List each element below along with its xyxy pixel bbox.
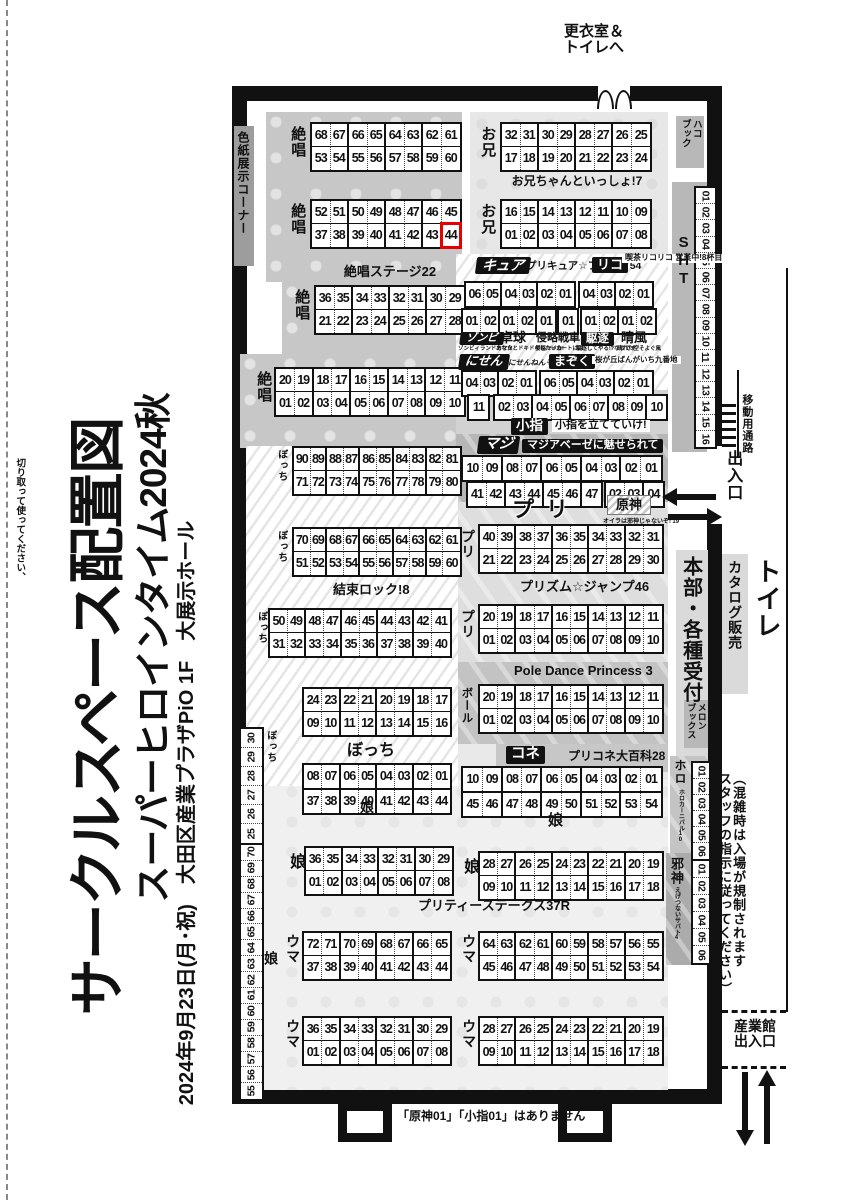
bocchi-label-c: ぼっち: [255, 611, 266, 644]
seat-musume-r-28: 28: [480, 853, 498, 876]
seat-kone-row1-01: 01: [641, 768, 661, 791]
seat-bocchi-d-15: 15: [414, 712, 432, 735]
seat-musume-row37-39: 39: [341, 790, 359, 813]
seat-puri-b-07: 07: [589, 629, 607, 652]
seat-puri-a-32: 32: [626, 526, 644, 549]
seat-puri-a-30: 30: [644, 549, 662, 572]
seat-sht-strip-02: 02: [696, 204, 715, 220]
seat-musume-r-12: 12: [535, 876, 553, 899]
seat-sensha-row-01: 01: [559, 310, 577, 333]
koyubi-label: 小指: [511, 418, 548, 435]
seat-puri-b-16: 16: [553, 606, 571, 629]
seat-uma-l2-06: 06: [395, 1041, 413, 1064]
page-subtitle: スーパーヒロインタイム2024秋: [125, 288, 175, 1008]
seat-maji-row-03: 03: [602, 457, 622, 480]
seat-bocchi-c-39: 39: [414, 633, 432, 656]
seat-zessho-a-55: 55: [349, 147, 368, 170]
seat-puri-a-38: 38: [516, 526, 534, 549]
seat-bocchi-b-68: 68: [327, 529, 344, 552]
seat-oni-b-14: 14: [539, 201, 558, 224]
seat-bocchi-d-13: 13: [377, 712, 395, 735]
seat-block-bocchi-c: 5049484746454443424131323334353637383940: [268, 608, 452, 658]
seat-zessho-c-32: 32: [390, 287, 409, 310]
seat-puri-b-08: 08: [607, 629, 625, 652]
seat-zessho-b-37: 37: [312, 224, 331, 247]
seat-zessho-d-15: 15: [370, 369, 389, 392]
seat-zessho-d-05: 05: [351, 392, 370, 415]
seat-strip-bocchi-strip: 302928272625: [239, 727, 264, 845]
puri-big-label: プリ: [512, 498, 580, 522]
seat-block-bocchi-d: 24232221201918170910111213141516: [302, 687, 452, 737]
seat-puri-b-12: 12: [626, 606, 644, 629]
seat-uma-r1-52: 52: [607, 956, 625, 979]
seat-musume-row37-42: 42: [395, 790, 413, 813]
seat-musume-l-35: 35: [324, 848, 342, 871]
seat-kone-row2-47: 47: [503, 793, 523, 816]
seat-oni-b-05: 05: [576, 224, 595, 247]
seat-zessho-b-47: 47: [405, 201, 424, 224]
ladder-bar: [722, 444, 736, 447]
prism-title: プリズム☆ジャンプ46: [520, 580, 649, 594]
seat-kone-row1-07: 07: [522, 768, 542, 791]
seat-bocchi-e-02: 02: [414, 765, 432, 788]
seat-cure-row-04: 04: [502, 283, 520, 306]
seat-puri-b-15: 15: [571, 606, 589, 629]
seat-bocchi-c-37: 37: [378, 633, 396, 656]
seat-block-oni-b: 16151413121110090102030405060708: [500, 199, 652, 249]
seat-musume-r-17: 17: [626, 876, 644, 899]
seat-koyubi-row-04: 04: [533, 396, 552, 419]
seat-uma-l2-03: 03: [341, 1041, 359, 1064]
seat-sht-strip-12: 12: [696, 366, 715, 382]
musume-label-row: 娘: [360, 800, 374, 815]
seat-koyubi-cell-11: 11: [469, 396, 488, 419]
seat-puri-row-47: 47: [582, 483, 601, 506]
seat-oni-b-03: 03: [539, 224, 558, 247]
seat-pole-block-07: 07: [589, 709, 607, 732]
seat-zessho-b-46: 46: [423, 201, 442, 224]
seat-puri-a-23: 23: [516, 549, 534, 572]
seat-puri-a-33: 33: [607, 526, 625, 549]
seat-zessho-d-17: 17: [332, 369, 351, 392]
seat-bocchi-a-76: 76: [377, 471, 394, 494]
sangyokan-arrow-down: [742, 1072, 748, 1132]
seat-bocchi-e-04: 04: [377, 765, 395, 788]
seat-kone-row1-10: 10: [463, 768, 483, 791]
seat-musume-r-20: 20: [626, 853, 644, 876]
seat-oni-a-31: 31: [521, 124, 540, 147]
seat-block-uma-l2: 36353433323130290102030405060708: [302, 1016, 452, 1066]
seat-zessho-b-52: 52: [312, 201, 331, 224]
hako-book-label: ハコ ブック: [679, 119, 701, 148]
seat-zessho-a-60: 60: [442, 147, 461, 170]
ido-tsuro-line: [737, 370, 739, 458]
seat-bocchi-a-75: 75: [360, 471, 377, 494]
seat-block-zombi-row: 0102: [461, 308, 501, 335]
seat-bocchi-c-46: 46: [342, 610, 360, 633]
seat-nisen-row-01: 01: [517, 372, 535, 395]
seat-maji-row-02: 02: [621, 457, 641, 480]
seat-uma-r1-55: 55: [644, 933, 662, 956]
seat-oni-a-28: 28: [576, 124, 595, 147]
seat-bocchi-c-41: 41: [432, 610, 450, 633]
seat-pole-block-10: 10: [644, 709, 662, 732]
seat-block-uma-l1: 72717069686766653738394041424344: [302, 931, 452, 981]
seat-bocchi-strip-26: 26: [241, 805, 262, 824]
seat-sht-strip-16: 16: [696, 431, 715, 447]
seat-kone-row1-05: 05: [562, 768, 582, 791]
seat-zessho-c-26: 26: [409, 310, 428, 333]
seat-oni-b-10: 10: [613, 201, 632, 224]
seat-zessho-a-54: 54: [331, 147, 350, 170]
seat-oni-a-21: 21: [576, 147, 595, 170]
harukaze-sub: 晴れた空そよぐ風: [617, 347, 661, 353]
seat-uma-r1-48: 48: [535, 956, 553, 979]
seat-uma-r2-16: 16: [607, 1041, 625, 1064]
seat-oni-a-30: 30: [539, 124, 558, 147]
seat-uma-l1-38: 38: [322, 956, 340, 979]
holo-sub: ホロカーニバル10: [677, 789, 683, 843]
seat-uma-r1-49: 49: [553, 956, 571, 979]
seat-bocchi-a-81: 81: [443, 448, 460, 471]
seat-bocchi-e-08: 08: [304, 765, 322, 788]
seat-musume-l-05: 05: [379, 871, 397, 894]
seat-zombi-row-01: 01: [463, 310, 481, 333]
seat-musume-l-34: 34: [343, 848, 361, 871]
seat-bocchi-b-59: 59: [427, 552, 444, 575]
seat-sht-strip-06: 06: [696, 269, 715, 285]
seat-zessho-c-35: 35: [335, 287, 354, 310]
oni-label-b: お兄: [479, 203, 495, 235]
seat-oni-b-11: 11: [595, 201, 614, 224]
seat-musume-l-07: 07: [416, 871, 434, 894]
seat-zessho-a-57: 57: [386, 147, 405, 170]
mazoku-label: まぞく: [549, 354, 595, 369]
seat-musume-r-18: 18: [644, 876, 662, 899]
musume-label-center: 娘: [548, 813, 563, 829]
seat-maji-row-04: 04: [582, 457, 602, 480]
seat-pole-block-18: 18: [516, 686, 534, 709]
cut-note: 切り取って使ってください、: [14, 458, 24, 582]
seat-mazoku-row-02: 02: [615, 372, 634, 395]
seat-musume-r-15: 15: [589, 876, 607, 899]
seat-bocchi-c-40: 40: [432, 633, 450, 656]
seat-uma-l2-32: 32: [377, 1018, 395, 1041]
seat-block-koyubi-cell: 11: [467, 394, 490, 421]
seat-zessho-c-27: 27: [427, 310, 446, 333]
seat-puri-a-26: 26: [571, 549, 589, 572]
seat-uma-r1-46: 46: [498, 956, 516, 979]
seat-holo-strip-06: 06: [693, 843, 709, 859]
catalog-label: カタログ販売: [727, 560, 742, 690]
seat-koyubi-row-05: 05: [552, 396, 571, 419]
seat-zessho-b-38: 38: [331, 224, 350, 247]
seat-uma-r2-23: 23: [571, 1018, 589, 1041]
seat-bocchi-b-65: 65: [377, 529, 394, 552]
seat-oni-a-18: 18: [521, 147, 540, 170]
seat-bocchi-strip-29: 29: [241, 748, 262, 767]
seat-zessho-d-08: 08: [408, 392, 427, 415]
seat-musume-row37-38: 38: [322, 790, 340, 813]
seat-jashin-strip-03: 03: [693, 895, 709, 912]
seat-cure-row-03: 03: [520, 283, 538, 306]
seat-bocchi-b-52: 52: [311, 552, 328, 575]
seat-pole-block-19: 19: [498, 686, 516, 709]
seat-puri-b-14: 14: [589, 606, 607, 629]
zessho-stage-title: 絶唱ステージ22: [320, 265, 460, 279]
seat-zessho-b-50: 50: [349, 201, 368, 224]
seat-musume-r-22: 22: [589, 853, 607, 876]
seat-strip-sht-strip: 01020304050607080910111213141516: [694, 186, 717, 449]
seat-bocchi-b-54: 54: [344, 552, 361, 575]
seat-zessho-c-31: 31: [409, 287, 428, 310]
seat-block-musume-row37: 3738394041424344: [302, 788, 452, 815]
congestion-note: （混雑時は入場が規制されます スタッフの指示に従ってください）: [717, 772, 745, 1000]
seat-uma-r2-17: 17: [626, 1041, 644, 1064]
seat-kone-row2-52: 52: [602, 793, 622, 816]
seat-bocchi-c-44: 44: [378, 610, 396, 633]
seat-musume-l-29: 29: [434, 848, 452, 871]
seat-oni-a-32: 32: [502, 124, 521, 147]
seat-sht-strip-08: 08: [696, 301, 715, 317]
jashin-sub: えげつないサバト4: [673, 887, 679, 941]
seat-puri-a-37: 37: [535, 526, 553, 549]
seat-bocchi-b-70: 70: [294, 529, 311, 552]
seat-uma-l1-40: 40: [359, 956, 377, 979]
seat-bocchi-a-77: 77: [394, 471, 411, 494]
seat-holo-strip-01: 01: [693, 763, 709, 779]
seat-zessho-b-49: 49: [368, 201, 387, 224]
uma-label-l1: ウマ: [285, 934, 300, 964]
seat-uma-r1-47: 47: [516, 956, 534, 979]
seat-kone-row2-48: 48: [522, 793, 542, 816]
seat-uma-l2-01: 01: [304, 1041, 322, 1064]
seat-uma-r1-56: 56: [626, 933, 644, 956]
seat-musume-r-13: 13: [553, 876, 571, 899]
shinryaku-label: 侵略: [536, 333, 558, 345]
seat-musume-l-32: 32: [379, 848, 397, 871]
seat-uma-r2-10: 10: [498, 1041, 516, 1064]
seat-zessho-a-63: 63: [405, 124, 424, 147]
sangyokan-label: 産業館 出入口: [726, 1019, 784, 1049]
seat-uma-l2-02: 02: [322, 1041, 340, 1064]
seat-sht-strip-09: 09: [696, 318, 715, 334]
seat-zessho-b-42: 42: [405, 224, 424, 247]
seat-uma-r2-21: 21: [607, 1018, 625, 1041]
cure-label: キュア: [475, 257, 531, 274]
genshin-label: 原神: [607, 495, 651, 515]
seat-pole-block-16: 16: [553, 686, 571, 709]
seat-uma-r2-27: 27: [498, 1018, 516, 1041]
seat-uma-l2-04: 04: [359, 1041, 377, 1064]
seat-uma-l1-67: 67: [395, 933, 413, 956]
seat-uma-r2-09: 09: [480, 1041, 498, 1064]
seat-bocchi-b-57: 57: [394, 552, 411, 575]
seat-koyubi-row-07: 07: [590, 396, 609, 419]
seat-maji-row-10: 10: [463, 457, 483, 480]
page-venue: 2024年9月23日(月･祝) 大田区産業プラザPiO 1F 大展示ホール: [171, 461, 197, 1165]
seat-musume-r-21: 21: [607, 853, 625, 876]
seat-bocchi-a-79: 79: [427, 471, 444, 494]
ladder-bar: [722, 412, 736, 415]
seat-puri-a-34: 34: [589, 526, 607, 549]
seat-bocchi-strip-30: 30: [241, 729, 262, 748]
seat-nisen-row-02: 02: [499, 372, 517, 395]
page-title: サークルスペース配置図: [56, 277, 130, 1157]
seat-zessho-d-19: 19: [295, 369, 314, 392]
seat-block-zessho-a: 68676665646362615354555657585960: [310, 122, 462, 172]
seat-koyubi-row-02: 02: [495, 396, 514, 419]
seat-oni-a-22: 22: [595, 147, 614, 170]
seat-uma-l2-29: 29: [432, 1018, 450, 1041]
seat-bocchi-a-88: 88: [327, 448, 344, 471]
seat-musume-r-16: 16: [607, 876, 625, 899]
seat-block-uma-r2: 2827262524232221201909101112131415161718: [478, 1016, 664, 1066]
seat-oni-a-25: 25: [632, 124, 651, 147]
seat-cure-row-05: 05: [484, 283, 502, 306]
seat-oni-a-23: 23: [613, 147, 632, 170]
seat-musume-strip-68: 68: [241, 877, 262, 893]
seat-bocchi-c-31: 31: [270, 633, 288, 656]
seat-bocchi-b-60: 60: [443, 552, 460, 575]
seat-oni-b-15: 15: [521, 201, 540, 224]
seat-sht-strip-03: 03: [696, 220, 715, 236]
seat-block-koyubi-row: 020304050607080910: [493, 394, 668, 421]
ido-tsuro-label: 移動用通路: [740, 394, 752, 454]
bocchi-label-h: ぼっち: [347, 742, 395, 759]
seat-zessho-b-43: 43: [423, 224, 442, 247]
seat-block-maji-row: 10090807060504030201: [461, 455, 663, 482]
seat-bocchi-c-45: 45: [360, 610, 378, 633]
seat-oni-a-29: 29: [558, 124, 577, 147]
seat-sht-strip-01: 01: [696, 188, 715, 204]
seat-nisen-row-03: 03: [481, 372, 499, 395]
seat-uma-l1-44: 44: [432, 956, 450, 979]
sangyokan-dash-bottom: [722, 1066, 786, 1069]
seat-puri-b-09: 09: [626, 629, 644, 652]
holo-label: ホロ: [673, 759, 686, 785]
seat-oni-b-07: 07: [613, 224, 632, 247]
seat-oni-b-01: 01: [502, 224, 521, 247]
seat-puri-a-35: 35: [571, 526, 589, 549]
seat-bocchi-b-55: 55: [360, 552, 377, 575]
seat-bocchi-b-69: 69: [311, 529, 328, 552]
seat-zessho-b-41: 41: [386, 224, 405, 247]
seat-bocchi-a-87: 87: [344, 448, 361, 471]
seat-jashin-strip-01: 01: [693, 861, 709, 878]
takkyu-label: 卓球: [500, 331, 526, 345]
seat-uma-r2-28: 28: [480, 1018, 498, 1041]
seat-zessho-a-62: 62: [423, 124, 442, 147]
seat-bocchi-d-11: 11: [341, 712, 359, 735]
seat-musume-r-11: 11: [516, 876, 534, 899]
seat-oni-a-19: 19: [539, 147, 558, 170]
zessho-label-b: 絶唱: [289, 203, 305, 235]
seat-block-rico-row: 04030201: [578, 281, 654, 308]
seat-puri-b-17: 17: [535, 606, 553, 629]
seat-uma-r2-14: 14: [571, 1041, 589, 1064]
seat-zessho-a-53: 53: [312, 147, 331, 170]
seat-pole-block-15: 15: [571, 686, 589, 709]
sangyokan-arrow-down-head: [736, 1130, 754, 1146]
exit-arrow-left: [676, 494, 716, 500]
seat-block-bocchi-a: 9089888786858483828171727374757677787980: [292, 446, 462, 496]
seat-oni-b-12: 12: [576, 201, 595, 224]
ladder-bar: [722, 420, 736, 423]
seat-uma-r2-12: 12: [535, 1041, 553, 1064]
seat-block-sensha-row: 01: [557, 308, 579, 335]
seat-zessho-b-44: 44: [442, 224, 461, 247]
seat-bocchi-d-10: 10: [322, 712, 340, 735]
seat-uma-r2-13: 13: [553, 1041, 571, 1064]
puri-label-b: プリ: [460, 609, 475, 639]
seat-musume-row37-37: 37: [304, 790, 322, 813]
sangyokan-arrow-up: [764, 1086, 770, 1144]
seat-pole-block-14: 14: [589, 686, 607, 709]
seat-oni-b-08: 08: [632, 224, 651, 247]
seat-bocchi-c-50: 50: [270, 610, 288, 633]
seat-pole-block-03: 03: [516, 709, 534, 732]
ball-label: ボール: [460, 687, 472, 725]
pretty-title: プリティーステークス37R: [418, 899, 570, 913]
seat-musume-r-25: 25: [535, 853, 553, 876]
seat-zessho-a-64: 64: [386, 124, 405, 147]
wall-bottom: [232, 1089, 722, 1104]
seat-puri-a-31: 31: [644, 526, 662, 549]
seat-koyubi-row-09: 09: [628, 396, 647, 419]
seat-bocchi-strip-25: 25: [241, 824, 262, 843]
seat-bocchi-b-63: 63: [410, 529, 427, 552]
mazoku-sub: 桜が丘ばんがいち九番地: [592, 356, 681, 364]
seat-puri-a-40: 40: [480, 526, 498, 549]
bocchi-label-a: ぼっち: [275, 449, 286, 482]
seat-bocchi-c-34: 34: [324, 633, 342, 656]
seat-musume-l-30: 30: [416, 848, 434, 871]
seat-musume-row37-43: 43: [414, 790, 432, 813]
seat-uma-l1-70: 70: [341, 933, 359, 956]
seat-musume-strip-69: 69: [241, 861, 262, 877]
seat-maji-row-01: 01: [641, 457, 661, 480]
seat-block-pole-block: 2019181716151413121101020304050607080910: [478, 684, 664, 734]
seat-block-bocchi-e: 0807060504030201: [302, 763, 452, 790]
seat-kone-row2-54: 54: [641, 793, 661, 816]
seat-musume-r-26: 26: [516, 853, 534, 876]
seat-uma-r2-18: 18: [644, 1041, 662, 1064]
zessho-label-c: 絶唱: [293, 289, 309, 321]
seat-musume-strip-59: 59: [241, 1020, 262, 1036]
cut-line: [6, 0, 8, 1200]
seat-uma-l1-43: 43: [414, 956, 432, 979]
seat-bocchi-c-49: 49: [288, 610, 306, 633]
seat-block-oni-a: 32313029282726251718192021222324: [500, 122, 652, 172]
seat-pole-block-01: 01: [480, 709, 498, 732]
nisen-label: にせん: [458, 354, 510, 370]
musume-label-r: 娘: [461, 858, 478, 875]
seat-puri-a-24: 24: [535, 549, 553, 572]
seat-bocchi-a-85: 85: [377, 448, 394, 471]
exit-arrow-right-head: [707, 508, 722, 526]
seat-bocchi-e-03: 03: [395, 765, 413, 788]
seat-musume-l-03: 03: [343, 871, 361, 894]
kone-label: コネ: [506, 746, 545, 764]
seat-uma-r2-26: 26: [516, 1018, 534, 1041]
seat-maji-row-05: 05: [562, 457, 582, 480]
seat-musume-l-36: 36: [306, 848, 324, 871]
rico-title: 喫茶リコリコ 営業中!8杯目: [622, 254, 725, 263]
seat-bocchi-c-36: 36: [360, 633, 378, 656]
seat-puri-b-05: 05: [553, 629, 571, 652]
seat-block-shinryaku-row: 01: [535, 308, 557, 335]
